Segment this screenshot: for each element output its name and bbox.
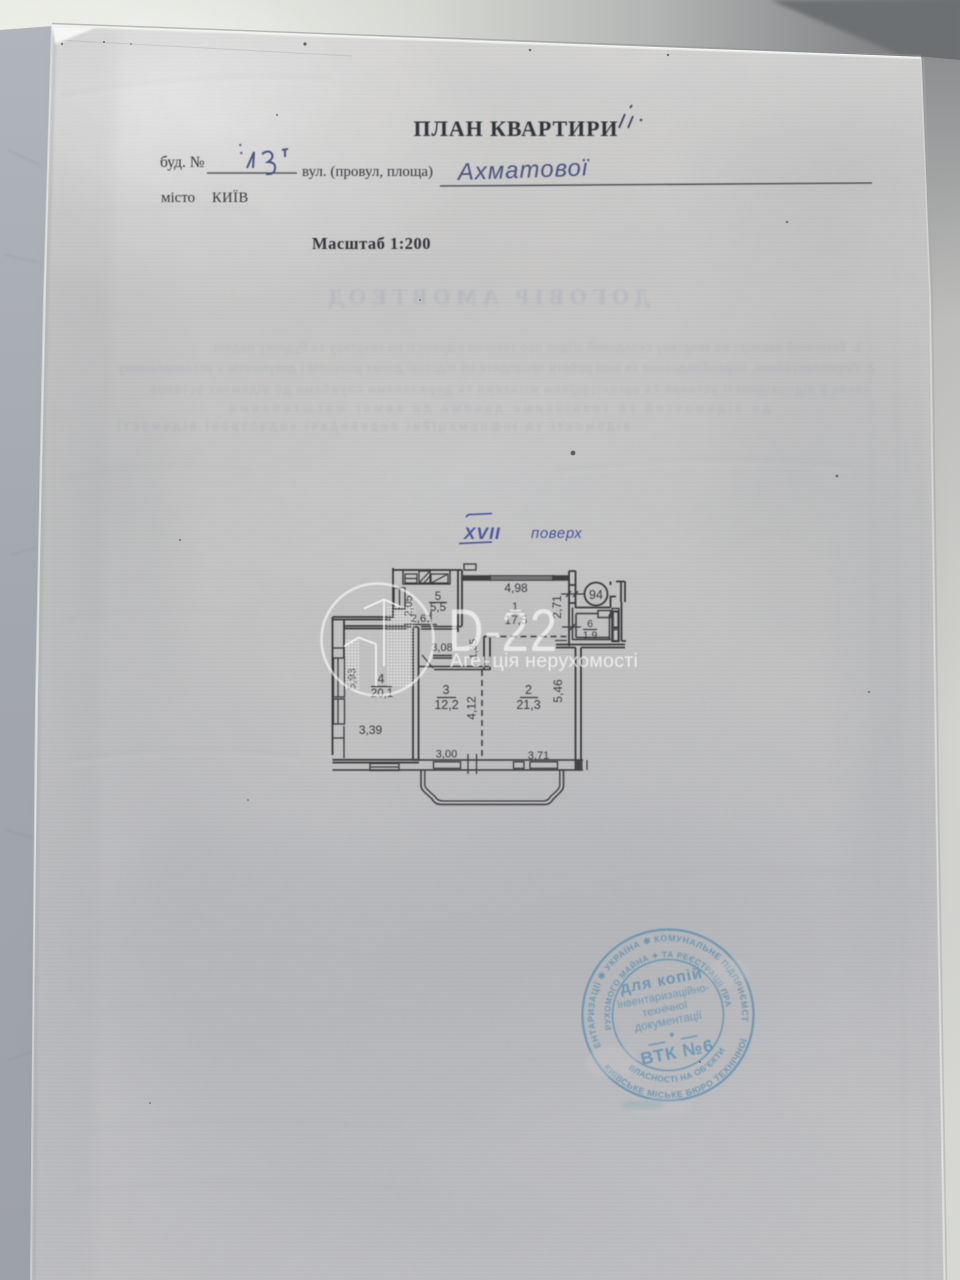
svg-text:Ахматової: Ахматової [455,154,590,186]
svg-text:до відомостей та технічними да: до відомостей та технічними даними до ви… [230,401,770,415]
svg-text:4: 4 [378,672,385,686]
svg-text:4,98: 4,98 [504,581,528,595]
svg-text:4,12: 4,12 [465,696,479,720]
svg-text:2: 2 [525,683,532,697]
svg-text:місто: місто [161,190,195,206]
svg-text:вул. (провул, площа): вул. (провул, площа) [302,164,433,180]
svg-text:94: 94 [589,588,603,602]
svg-text:3: 3 [443,683,450,697]
svg-text:5,5: 5,5 [430,602,446,614]
svg-text:Агенція нерухомості: Агенція нерухомості [450,650,638,672]
svg-text:3,71: 3,71 [528,750,549,762]
svg-text:буд. №: буд. № [160,154,205,171]
svg-text:1,9: 1,9 [583,630,598,642]
svg-text:21,3: 21,3 [516,698,540,712]
svg-text:поверх: поверх [531,525,582,542]
svg-text:1. Технічний паспорт на кварти: 1. Технічний паспорт на квартиру складен… [215,340,862,354]
svg-text:КИЇВ: КИЇВ [212,189,249,206]
svg-text:2. Перепланування, переобладна: 2. Перепланування, переобладнання та інш… [118,361,875,375]
svg-text:6: 6 [587,618,593,630]
svg-text:12,2: 12,2 [434,698,458,712]
svg-text:XVII: XVII [463,524,501,543]
svg-text:ПЛАН КВАРТИРИ: ПЛАН КВАРТИРИ [414,116,619,141]
svg-text:3,00: 3,00 [436,749,457,761]
svg-text:ДОГОВІР АМОВТЕОД: ДОГОВІР АМОВТЕОД [328,284,650,309]
svg-text:3,39: 3,39 [359,723,383,737]
svg-text:Масштаб 1:200: Масштаб 1:200 [312,234,431,253]
svg-text:5,46: 5,46 [551,679,565,703]
svg-text:відомості та інформаційні пере: відомості та інформаційні перевидачі кад… [118,419,630,433]
